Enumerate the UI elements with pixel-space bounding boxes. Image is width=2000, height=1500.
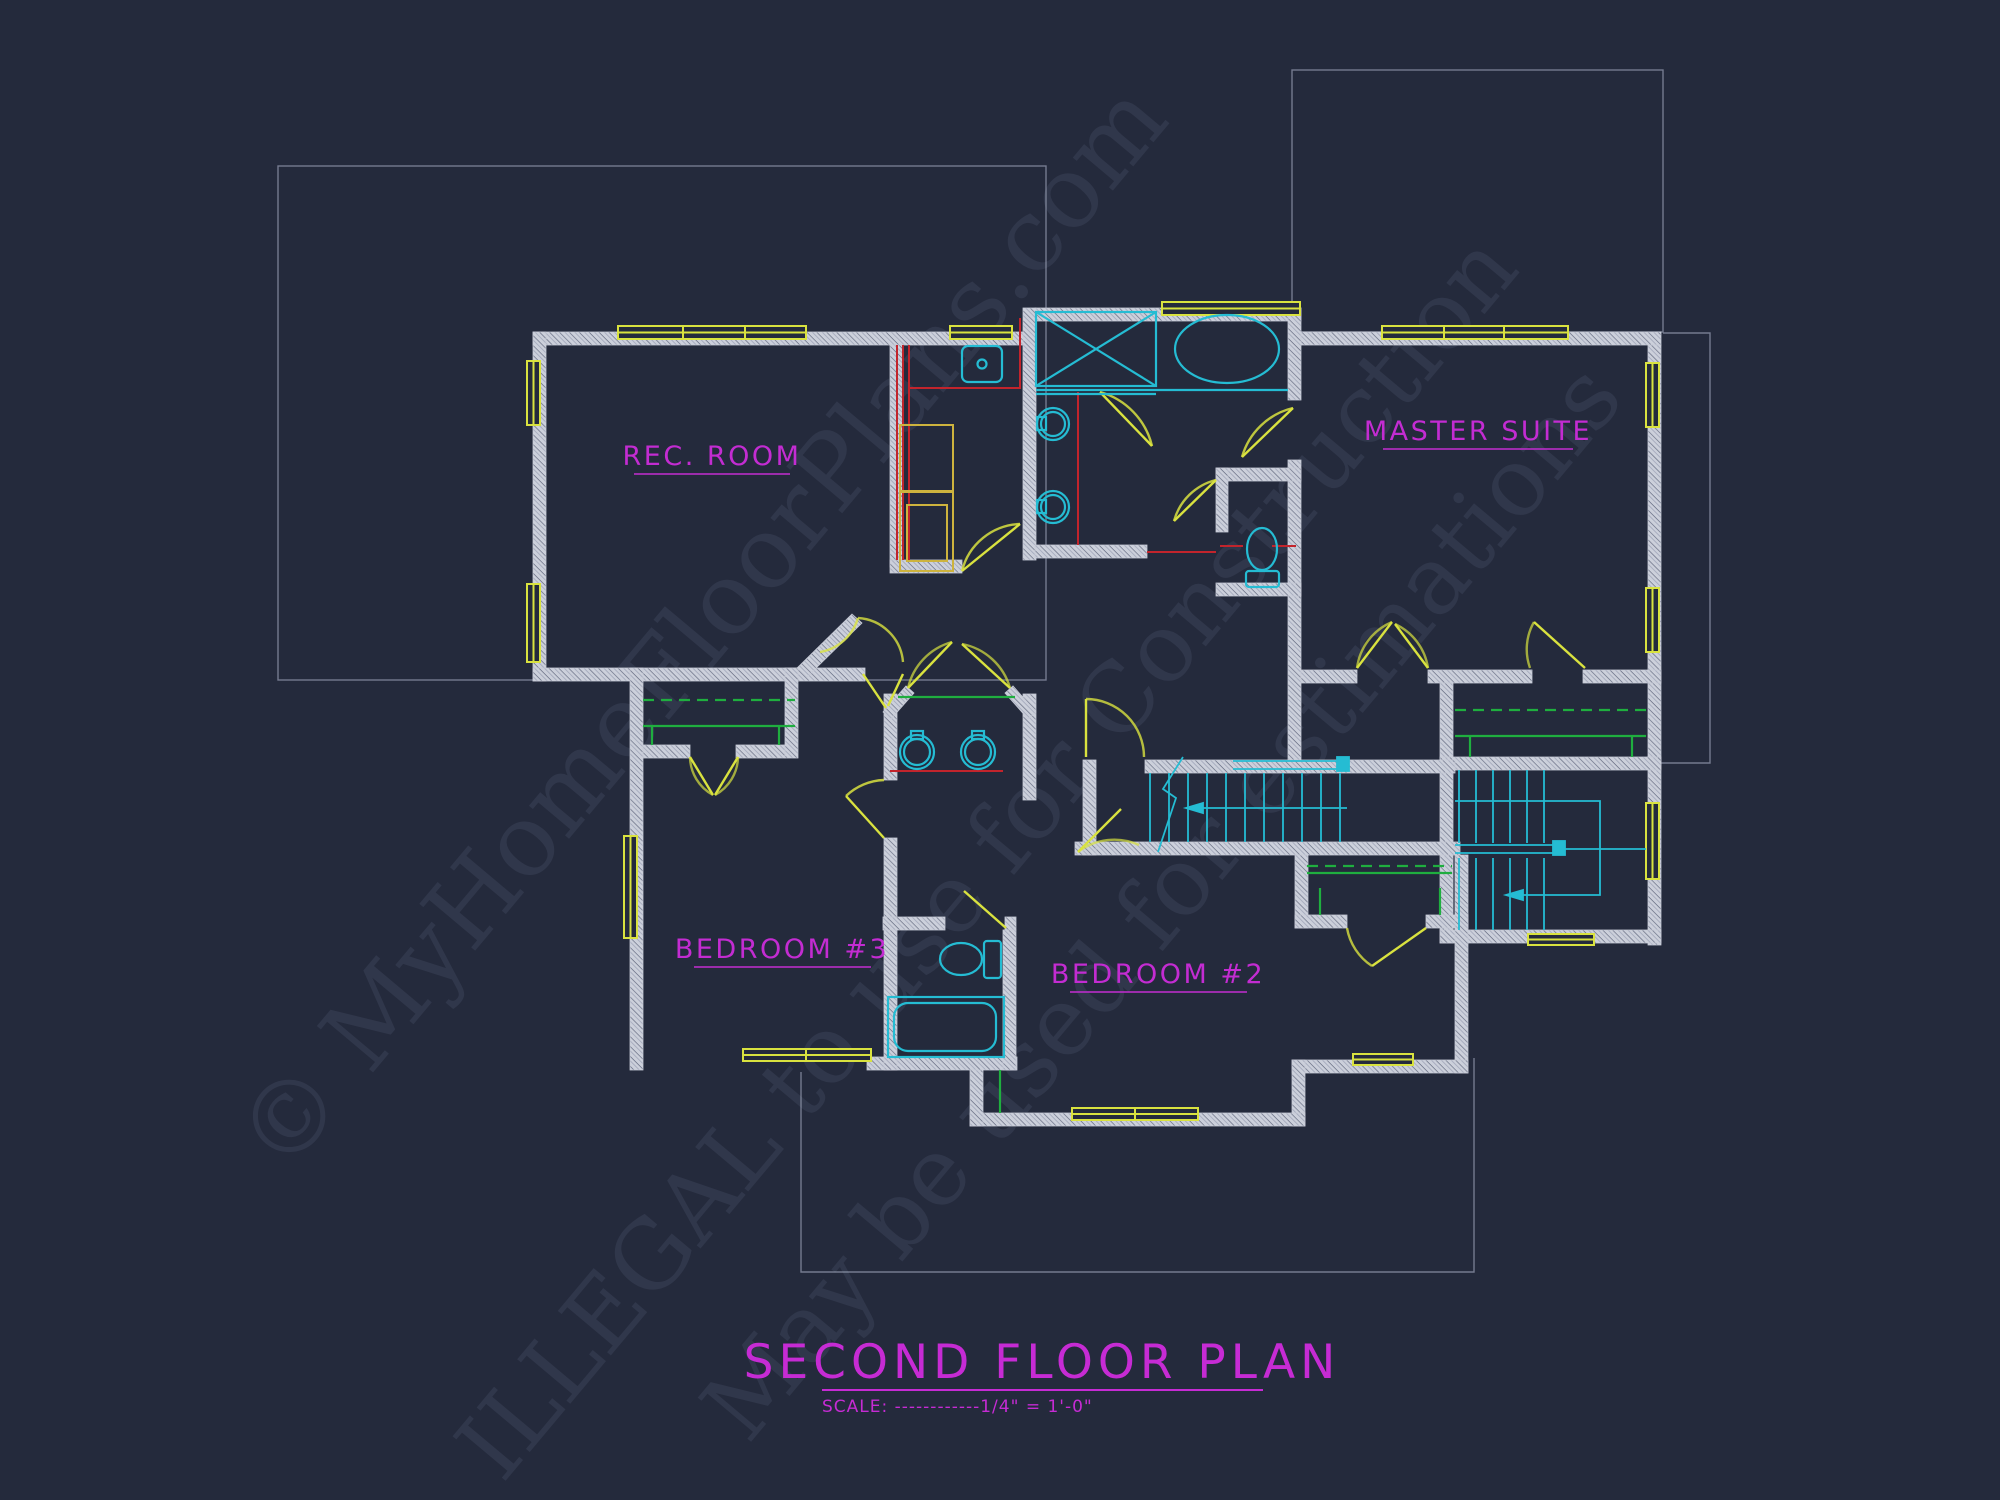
watermark-text: ILLEGAL to use for Construction (436, 214, 1539, 1499)
window (618, 326, 806, 339)
window (1646, 363, 1659, 427)
window (950, 326, 1012, 339)
window (1162, 302, 1300, 315)
window (1528, 934, 1594, 945)
window (1646, 588, 1659, 652)
rear-staircase (1455, 770, 1646, 930)
room-label-rec-room: REC. ROOM (623, 441, 802, 472)
window (1382, 326, 1568, 339)
door-bedroom3-closet-double (690, 757, 738, 795)
window (624, 836, 637, 938)
room-label-master-suite: MASTER SUITE (1364, 416, 1592, 447)
master-vanity-sink (1037, 491, 1069, 523)
window (527, 584, 540, 662)
room-label-bedroom-2: BEDROOM #2 (1051, 959, 1265, 990)
hall-vanity-sink (900, 731, 934, 769)
hall-vanity-sink (961, 731, 995, 769)
door-bedroom3 (846, 780, 884, 838)
window (1646, 803, 1659, 879)
window (743, 1049, 871, 1061)
door-shower (1100, 392, 1152, 446)
shower (1036, 312, 1288, 394)
watermark-layer: © MyHomeFloorPlans.com ILLEGAL to use fo… (214, 61, 1644, 1499)
window (527, 361, 540, 425)
title-block: SECOND FLOOR PLAN SCALE: ------------1/4… (744, 1335, 1341, 1417)
window (1072, 1108, 1198, 1120)
plan-title: SECOND FLOOR PLAN (744, 1335, 1341, 1390)
door-master-closet (1527, 622, 1585, 668)
master-vanity-sink (1037, 408, 1069, 440)
floor-plan-page: © MyHomeFloorPlans.com ILLEGAL to use fo… (0, 0, 2000, 1500)
window (1353, 1054, 1413, 1065)
master-tub (1175, 315, 1279, 383)
door-hall-closet-double (908, 642, 1010, 688)
scale-note: SCALE: ------------1/4" = 1'-0" (822, 1397, 1093, 1417)
floor-plan-svg: © MyHomeFloorPlans.com ILLEGAL to use fo… (0, 0, 2000, 1500)
door-bedroom2-closet (1347, 928, 1426, 966)
door-laundry (962, 524, 1020, 571)
room-label-bedroom-3: BEDROOM #3 (675, 934, 889, 965)
